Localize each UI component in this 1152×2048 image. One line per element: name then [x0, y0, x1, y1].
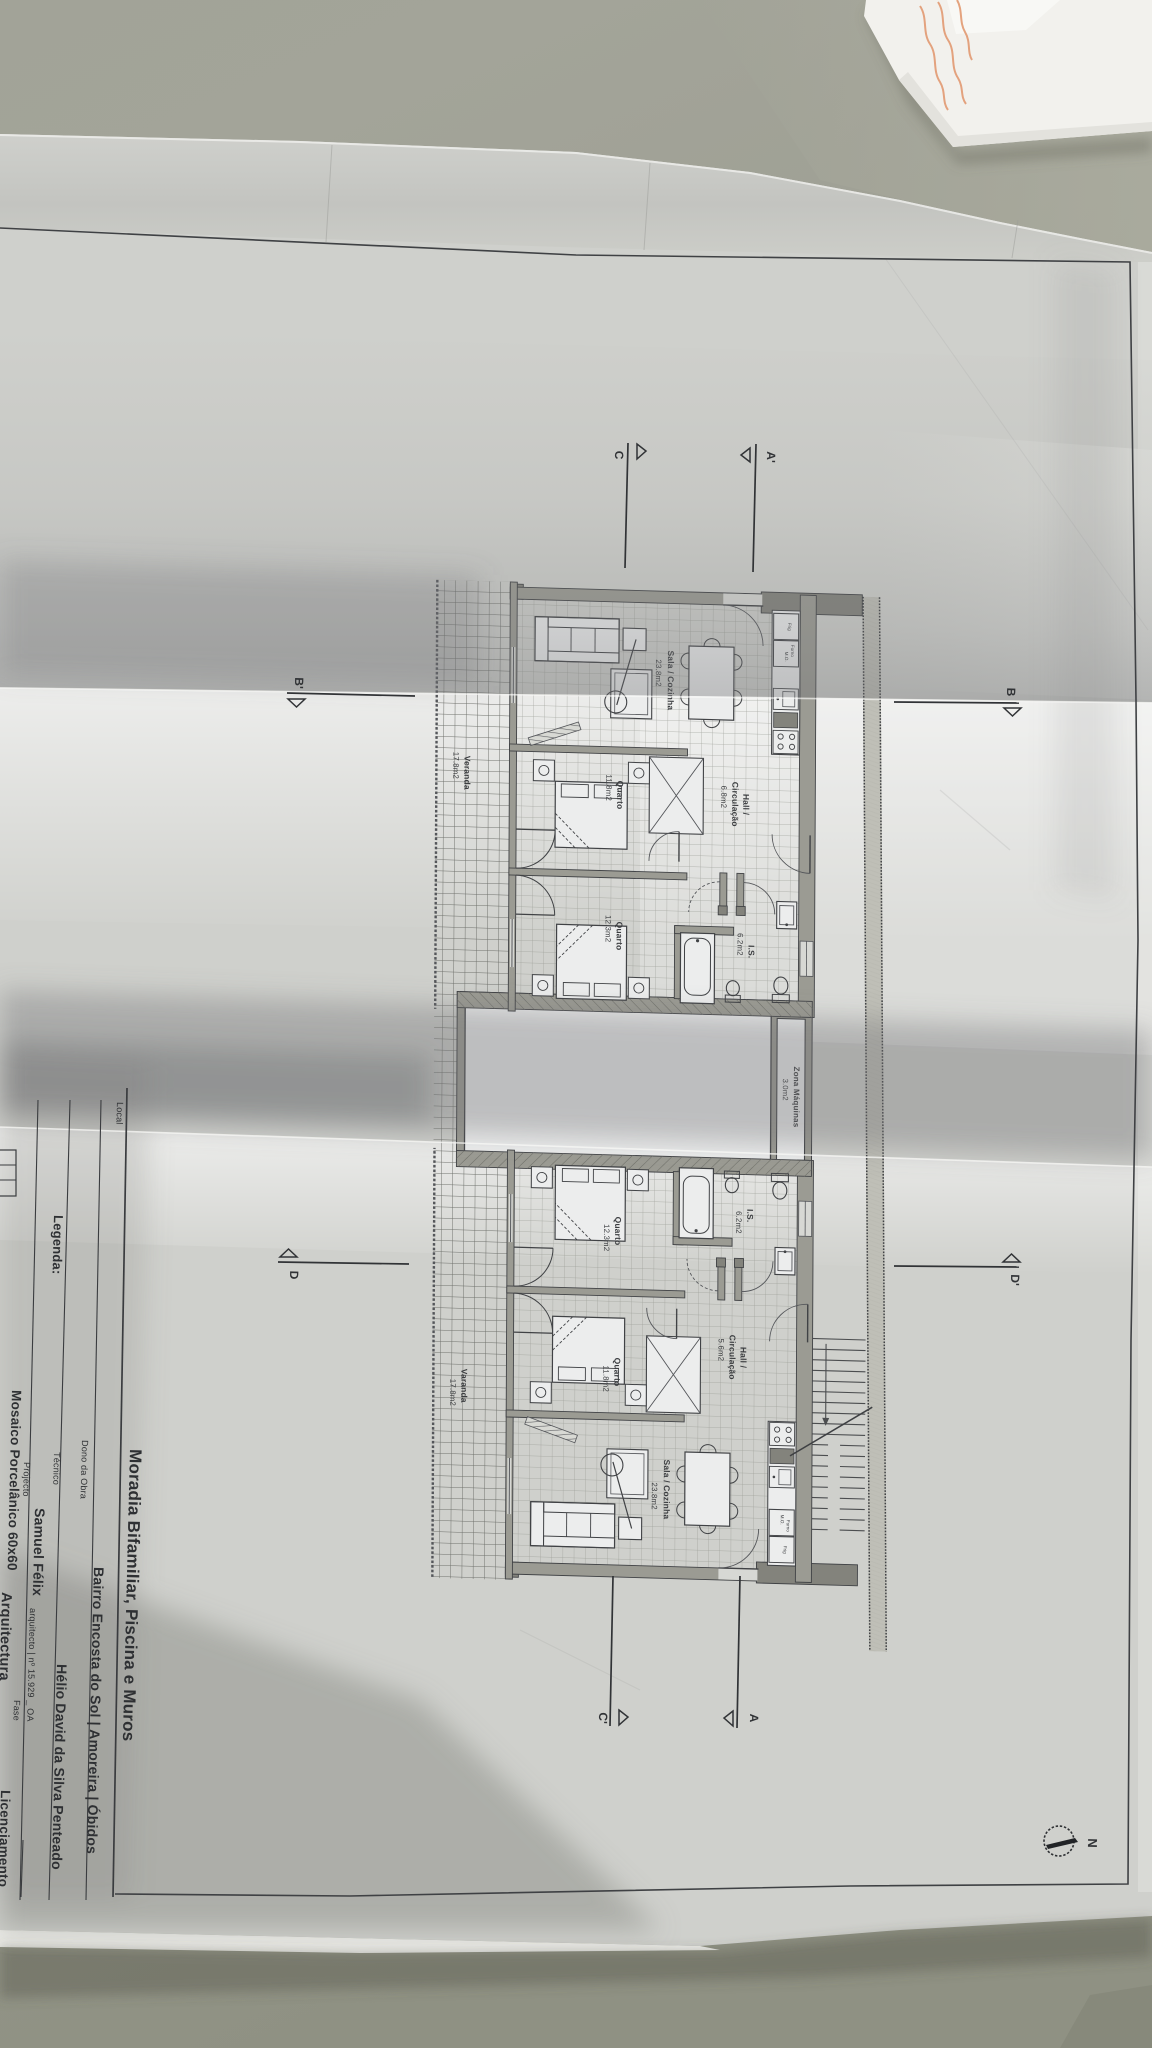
svg-text:Quarto: Quarto [612, 1358, 622, 1387]
svg-text:11.8m2: 11.8m2 [604, 774, 613, 801]
svg-text:A: A [747, 1714, 761, 1723]
svg-text:M.O.: M.O. [780, 1515, 785, 1525]
svg-text:Samuel Félix: Samuel Félix [30, 1508, 48, 1596]
svg-text:Licenciamento: Licenciamento [0, 1790, 13, 1887]
svg-text:6.2m2: 6.2m2 [734, 1211, 743, 1234]
svg-text:Quarto: Quarto [615, 922, 625, 951]
svg-text:Varanda: Varanda [459, 1369, 469, 1403]
svg-text:Legenda:: Legenda: [50, 1215, 66, 1275]
svg-text:Fase: Fase [11, 1700, 22, 1721]
svg-text:Dono da Obra: Dono da Obra [79, 1440, 90, 1499]
svg-text:C': C' [596, 1712, 610, 1724]
svg-text:6.8m2: 6.8m2 [719, 785, 728, 808]
svg-text:A': A' [764, 451, 778, 463]
svg-text:23.8m2: 23.8m2 [650, 1482, 659, 1509]
svg-text:Arquitectura: Arquitectura [0, 1592, 14, 1682]
svg-text:Local: Local [114, 1102, 125, 1125]
svg-text:C: C [612, 451, 626, 460]
svg-text:Quarto: Quarto [615, 781, 625, 810]
svg-text:B: B [1004, 688, 1018, 697]
svg-text:Hall /: Hall / [738, 1347, 748, 1369]
svg-text:Quarto: Quarto [613, 1217, 623, 1246]
svg-text:Circulação: Circulação [730, 782, 740, 827]
svg-text:12.3m2: 12.3m2 [602, 1224, 611, 1251]
svg-text:Frig: Frig [783, 1546, 788, 1554]
svg-text:I.S.: I.S. [746, 945, 756, 959]
svg-text:Hall /: Hall / [741, 794, 751, 816]
svg-text:Forno: Forno [786, 1520, 791, 1533]
svg-text:17.8m2: 17.8m2 [451, 752, 460, 779]
svg-text:Veranda: Veranda [462, 756, 472, 790]
svg-text:D: D [287, 1271, 301, 1280]
svg-text:B': B' [292, 677, 306, 689]
svg-text:6.2m2: 6.2m2 [735, 933, 744, 956]
svg-text:17.8m2: 17.8m2 [448, 1379, 457, 1406]
svg-text:N: N [1085, 1838, 1100, 1848]
svg-text:12.3m2: 12.3m2 [604, 915, 613, 942]
svg-text:5.6m2: 5.6m2 [716, 1338, 725, 1361]
svg-text:I.S.: I.S. [745, 1209, 755, 1223]
svg-text:D': D' [1008, 1274, 1022, 1286]
svg-text:Circulação: Circulação [727, 1335, 737, 1380]
svg-text:11.8m2: 11.8m2 [601, 1365, 610, 1392]
svg-text:Técnico: Técnico [51, 1452, 62, 1485]
svg-text:Sala / Cozinha: Sala / Cozinha [662, 1459, 672, 1519]
